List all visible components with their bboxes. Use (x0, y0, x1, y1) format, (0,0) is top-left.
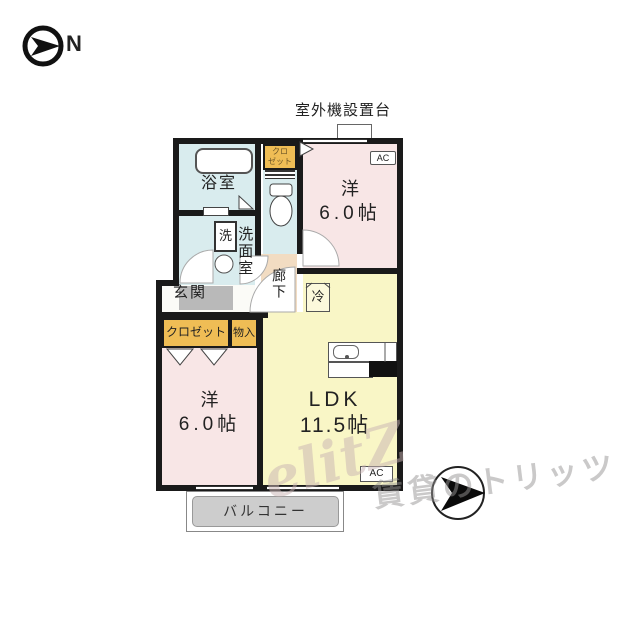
storage-box: 物入 (230, 318, 258, 348)
kitchen-sink-icon (333, 345, 359, 359)
refrigerator-box: 冷 (306, 283, 330, 312)
ac-lower-label: AC (370, 468, 384, 480)
floor-plan-page: クロ ゼット クロゼット 物入 洗 冷 AC AC バルコニー (0, 0, 640, 640)
bedroom-lower-type: 洋 (162, 390, 257, 411)
ac-upper-label: AC (377, 153, 390, 163)
ldk-type: LDK (275, 388, 395, 412)
bathtub-icon (195, 148, 253, 174)
bedroom-upper-size: 6.0帖 (303, 203, 397, 225)
wall-bedroom-lower-right (257, 318, 263, 485)
upper-closet-label-line1: クロ (265, 147, 295, 157)
wall-closet-top (156, 312, 268, 318)
lower-closet-box: クロゼット (162, 318, 230, 348)
wall-top (173, 138, 403, 144)
corridor-label: 廊下 (271, 256, 287, 312)
bedroom-lower-label: 洋 6.0帖 (162, 390, 257, 436)
kitchen-range-bar (369, 361, 400, 377)
watermark-brand: 賃貸のトリッツ (370, 441, 619, 516)
ldk-label: LDK 11.5帖 (275, 388, 395, 438)
upper-closet-label-line2: ゼット (265, 157, 295, 167)
wall-right (397, 138, 403, 491)
north-label: N (66, 31, 82, 56)
balcony-label: バルコニー (223, 503, 308, 519)
bathroom-label: 浴室 (194, 175, 244, 193)
wall-vent-tag (203, 207, 229, 216)
upper-closet-box: クロ ゼット (263, 144, 297, 170)
ldk-size: 11.5帖 (275, 414, 395, 438)
toilet-floor (263, 170, 297, 254)
toilet-cabinet-icon (265, 170, 295, 179)
bedroom-lower-size: 6.0帖 (162, 414, 257, 436)
window-top (303, 139, 367, 143)
window-bottom-left (196, 486, 253, 490)
entrance-label: 玄関 (167, 284, 213, 301)
brand-arrow-icon (432, 467, 485, 519)
washer-box: 洗 (214, 221, 237, 252)
balcony-box: バルコニー (192, 496, 339, 527)
bedroom-upper-type: 洋 (303, 179, 397, 200)
ac-lower-box: AC (360, 466, 393, 482)
washer-label: 洗 (219, 229, 232, 244)
lower-closet-label: クロゼット (166, 326, 226, 340)
ac-upper-box: AC (370, 151, 396, 165)
washroom-label: 洗面室 (236, 215, 253, 287)
wall-bedroom-upper-bottom (297, 268, 403, 274)
storage-label: 物入 (233, 327, 255, 340)
refrigerator-label: 冷 (311, 290, 324, 305)
wall-bath-right (255, 144, 261, 256)
outdoor-unit-label: 室外機設置台 (288, 102, 398, 119)
bedroom-upper-label: 洋 6.0帖 (303, 179, 397, 225)
north-compass-icon (25, 28, 61, 64)
kitchen-counter-2 (328, 362, 373, 378)
window-bottom-right (267, 486, 339, 490)
